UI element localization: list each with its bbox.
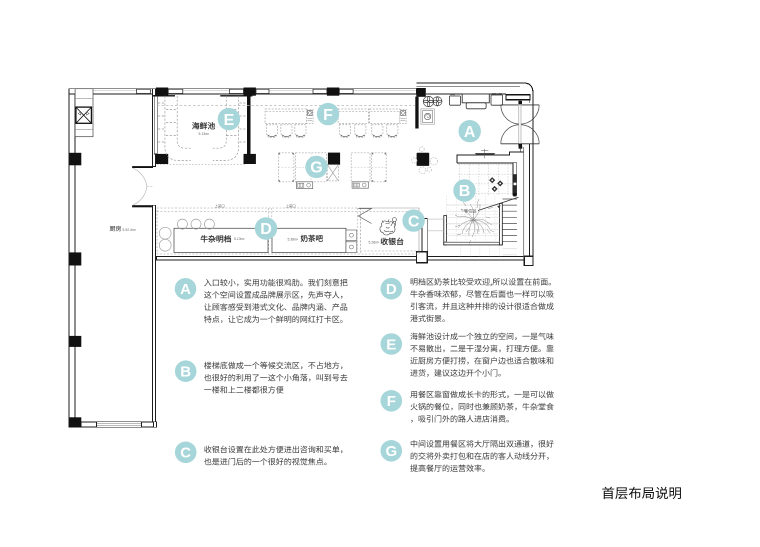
svg-text:G: G	[310, 160, 322, 177]
svg-text:E: E	[224, 112, 235, 129]
svg-text:A: A	[464, 124, 476, 141]
svg-text:G: G	[385, 443, 397, 460]
svg-text:F: F	[387, 393, 396, 410]
svg-text:5.28m²: 5.28m²	[369, 240, 380, 244]
svg-text:A: A	[180, 281, 191, 298]
svg-text:5.13m²: 5.13m²	[199, 132, 210, 136]
svg-text:D: D	[260, 221, 272, 238]
svg-text:F: F	[323, 107, 333, 124]
svg-text:E: E	[386, 336, 396, 353]
svg-text:C: C	[408, 213, 420, 230]
svg-text:B: B	[180, 364, 191, 381]
svg-text:5.13m²: 5.13m²	[234, 237, 245, 241]
svg-text:D: D	[386, 281, 397, 298]
svg-text:C: C	[180, 445, 191, 462]
svg-text:5.92.4m²: 5.92.4m²	[123, 228, 137, 232]
svg-text:5.38m²: 5.38m²	[288, 238, 299, 242]
svg-text:B: B	[459, 183, 471, 200]
